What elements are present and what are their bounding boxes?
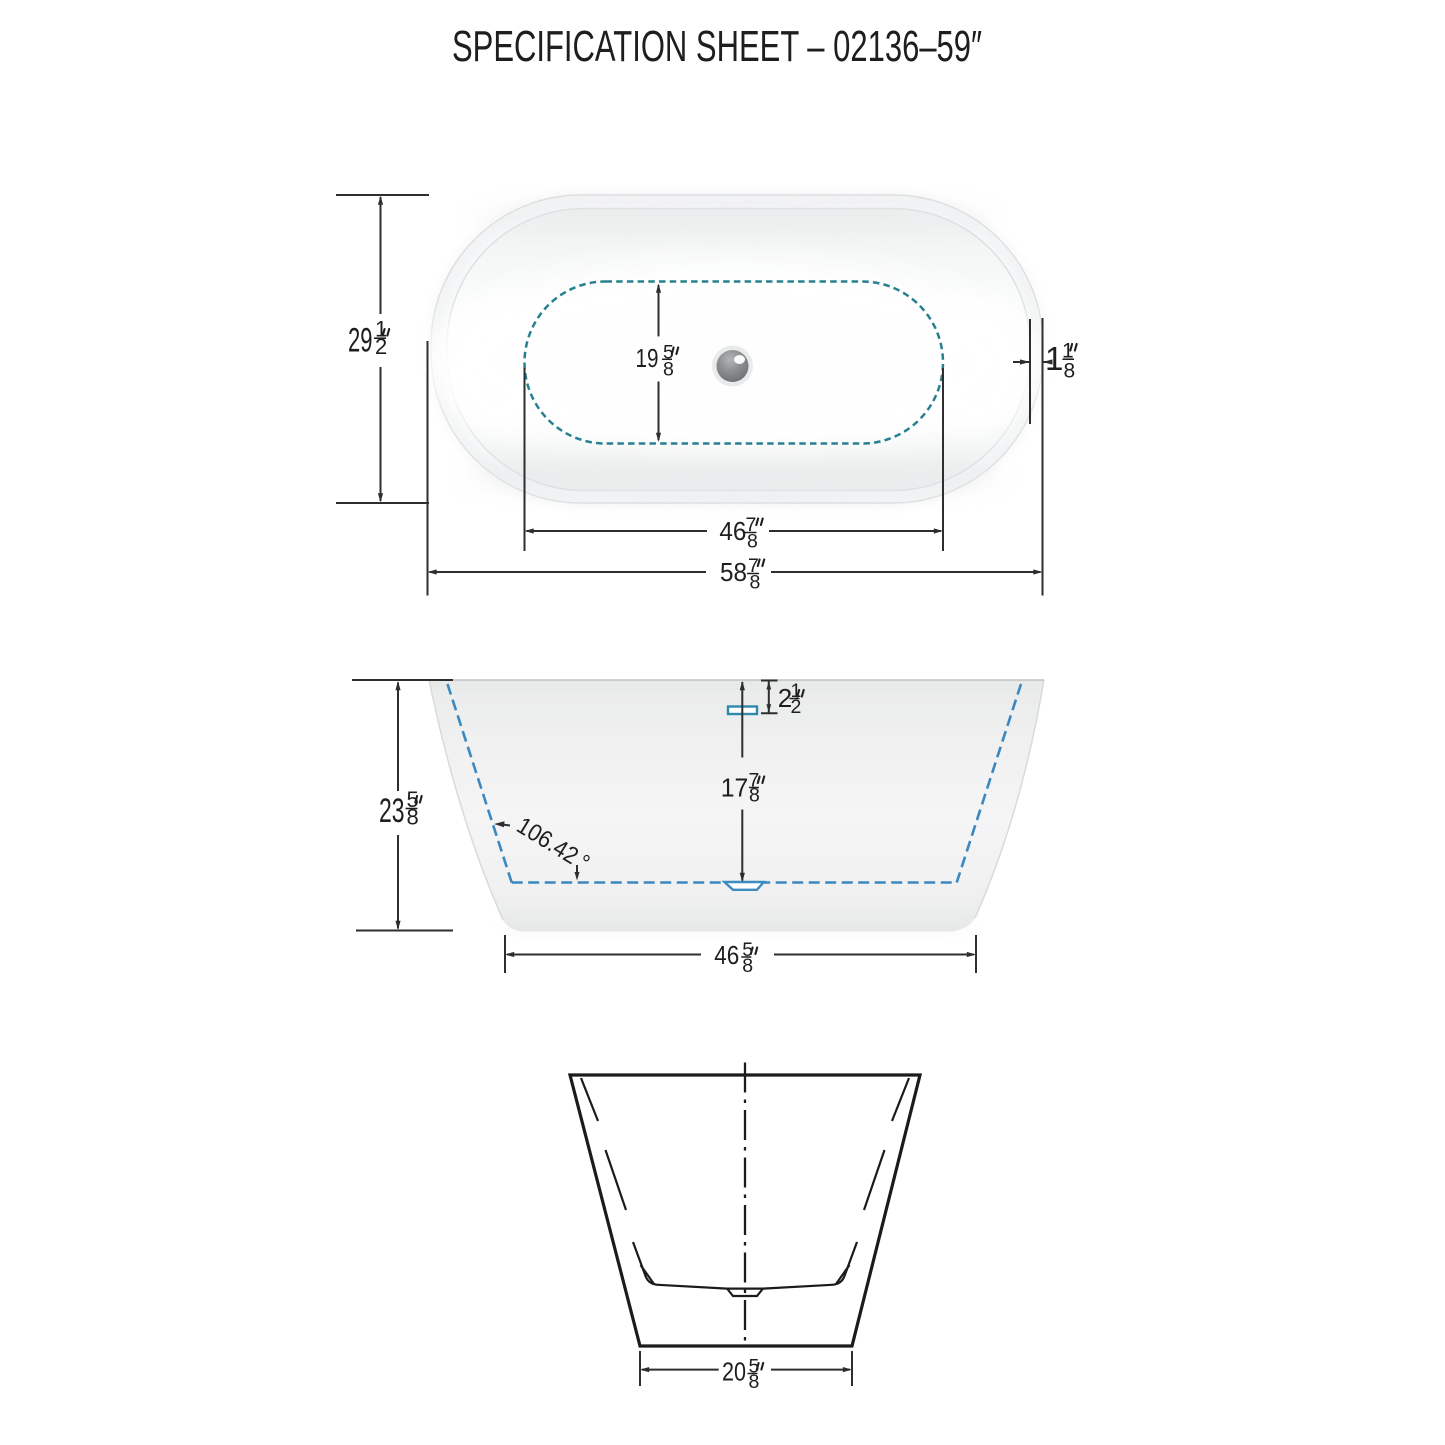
- svg-text:58: 58: [720, 557, 747, 587]
- svg-text:8: 8: [742, 955, 753, 977]
- svg-text:8: 8: [1064, 360, 1076, 383]
- svg-text:2: 2: [375, 334, 387, 359]
- svg-text:8: 8: [407, 805, 419, 830]
- svg-text:8: 8: [663, 358, 674, 380]
- svg-text:19: 19: [636, 343, 659, 373]
- svg-text:8: 8: [749, 1371, 760, 1393]
- svg-text:46: 46: [719, 516, 746, 546]
- svg-text:2: 2: [791, 696, 802, 718]
- svg-text:23: 23: [379, 792, 405, 830]
- svg-text:8: 8: [750, 572, 761, 594]
- svg-text:17: 17: [721, 773, 749, 803]
- svg-text:8: 8: [749, 784, 760, 806]
- svg-text:SPECIFICATION SHEET – 02136–59: SPECIFICATION SHEET – 02136–59″: [452, 22, 982, 71]
- svg-text:1: 1: [1045, 340, 1063, 377]
- svg-text:29: 29: [348, 322, 373, 360]
- svg-text:8: 8: [747, 531, 758, 553]
- svg-text:20: 20: [722, 1357, 746, 1387]
- svg-text:46: 46: [714, 940, 739, 970]
